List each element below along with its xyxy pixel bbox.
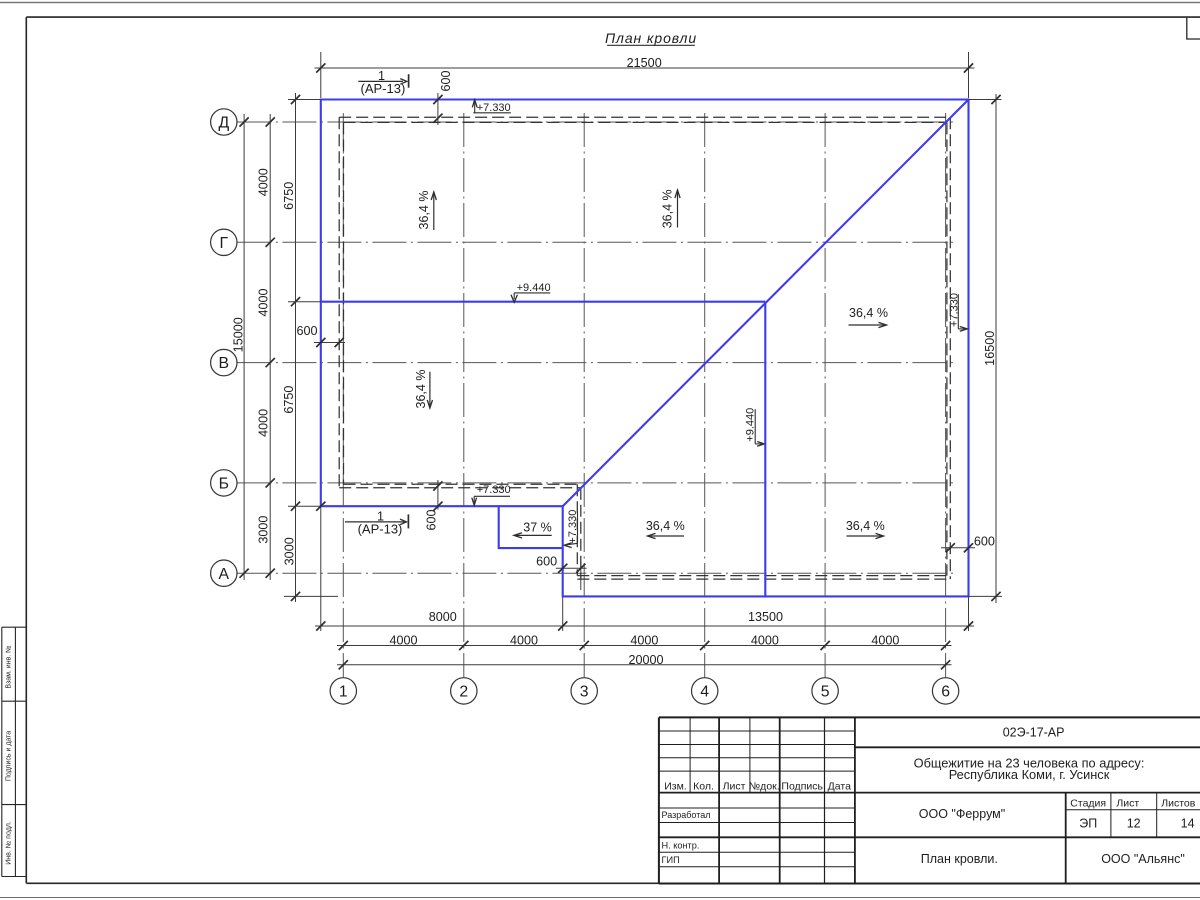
svg-text:Взам. инв. №: Взам. инв. № <box>5 645 12 688</box>
svg-text:600: 600 <box>536 555 557 569</box>
svg-text:Разработал: Разработал <box>662 810 711 820</box>
svg-text:36,4 %: 36,4 % <box>417 191 431 230</box>
svg-text:Лист: Лист <box>723 780 746 792</box>
svg-text:+9.440: +9.440 <box>517 282 551 294</box>
svg-text:5: 5 <box>821 684 830 701</box>
svg-text:ЭП: ЭП <box>1079 817 1097 831</box>
svg-text:600: 600 <box>974 535 995 549</box>
svg-text:36,4 %: 36,4 % <box>414 370 428 409</box>
svg-text:8000: 8000 <box>429 610 457 624</box>
svg-text:21500: 21500 <box>627 56 662 70</box>
svg-text:В: В <box>219 355 230 372</box>
svg-text:4000: 4000 <box>510 634 538 648</box>
svg-text:А: А <box>219 566 230 583</box>
svg-text:Республика Коми, г. Усинск: Республика Коми, г. Усинск <box>949 767 1110 782</box>
svg-text:(АР-13): (АР-13) <box>358 522 403 537</box>
svg-text:36,4 %: 36,4 % <box>846 519 885 533</box>
svg-text:4000: 4000 <box>751 634 779 648</box>
svg-text:3000: 3000 <box>257 516 271 544</box>
svg-text:4000: 4000 <box>871 634 899 648</box>
svg-text:Лист: Лист <box>1116 797 1139 809</box>
svg-text:+7.330: +7.330 <box>477 102 511 114</box>
svg-text:6: 6 <box>941 684 950 701</box>
svg-text:Изм.: Изм. <box>664 780 687 792</box>
svg-text:Стадия: Стадия <box>1070 797 1106 809</box>
svg-text:Дата: Дата <box>828 780 851 792</box>
svg-text:15000: 15000 <box>232 317 246 352</box>
svg-text:Листов: Листов <box>1161 797 1196 809</box>
svg-text:02Э-17-АР: 02Э-17-АР <box>1003 726 1065 740</box>
svg-text:Г: Г <box>220 235 229 252</box>
svg-text:20000: 20000 <box>628 653 663 667</box>
svg-text:600: 600 <box>296 324 317 338</box>
svg-text:ООО "Феррум": ООО "Феррум" <box>919 807 1005 821</box>
svg-text:3000: 3000 <box>282 537 296 565</box>
svg-text:4000: 4000 <box>630 634 658 648</box>
svg-text:12: 12 <box>1127 817 1141 831</box>
svg-text:2: 2 <box>459 684 468 701</box>
svg-text:4000: 4000 <box>257 168 271 196</box>
svg-text:37 %: 37 % <box>523 521 552 535</box>
svg-text:4: 4 <box>700 684 709 701</box>
svg-text:+7.330: +7.330 <box>477 484 511 496</box>
svg-text:4000: 4000 <box>257 409 271 437</box>
svg-text:Подпись и дата: Подпись и дата <box>5 731 12 781</box>
svg-text:4000: 4000 <box>257 288 271 316</box>
svg-text:36,4 %: 36,4 % <box>849 306 888 320</box>
svg-text:План кровли.: План кровли. <box>921 852 998 866</box>
svg-text:№док.: №док. <box>749 780 780 792</box>
svg-text:+9.440: +9.440 <box>744 408 756 442</box>
svg-text:ООО "Альянс": ООО "Альянс" <box>1101 852 1185 866</box>
svg-text:ГИП: ГИП <box>662 855 680 865</box>
svg-text:6750: 6750 <box>282 386 296 414</box>
svg-text:Кол.: Кол. <box>693 780 714 792</box>
svg-text:Б: Б <box>219 476 229 493</box>
svg-text:13500: 13500 <box>748 610 783 624</box>
svg-text:600: 600 <box>439 70 453 91</box>
svg-text:Подпись: Подпись <box>781 780 823 792</box>
svg-text:16500: 16500 <box>983 331 997 366</box>
svg-text:1: 1 <box>339 684 348 701</box>
svg-text:4000: 4000 <box>390 634 418 648</box>
svg-text:6750: 6750 <box>282 182 296 210</box>
svg-text:600: 600 <box>425 509 439 530</box>
svg-text:36,4 %: 36,4 % <box>646 519 685 533</box>
svg-text:14: 14 <box>1181 817 1195 831</box>
svg-text:(АР-13): (АР-13) <box>361 81 406 96</box>
svg-text:36,4 %: 36,4 % <box>661 189 675 228</box>
svg-text:3: 3 <box>580 684 589 701</box>
svg-text:Д: Д <box>218 115 229 132</box>
svg-text:Н. контр.: Н. контр. <box>662 840 700 850</box>
svg-text:План кровли: План кровли <box>605 30 697 46</box>
svg-text:Инв. № подл.: Инв. № подл. <box>5 821 12 865</box>
